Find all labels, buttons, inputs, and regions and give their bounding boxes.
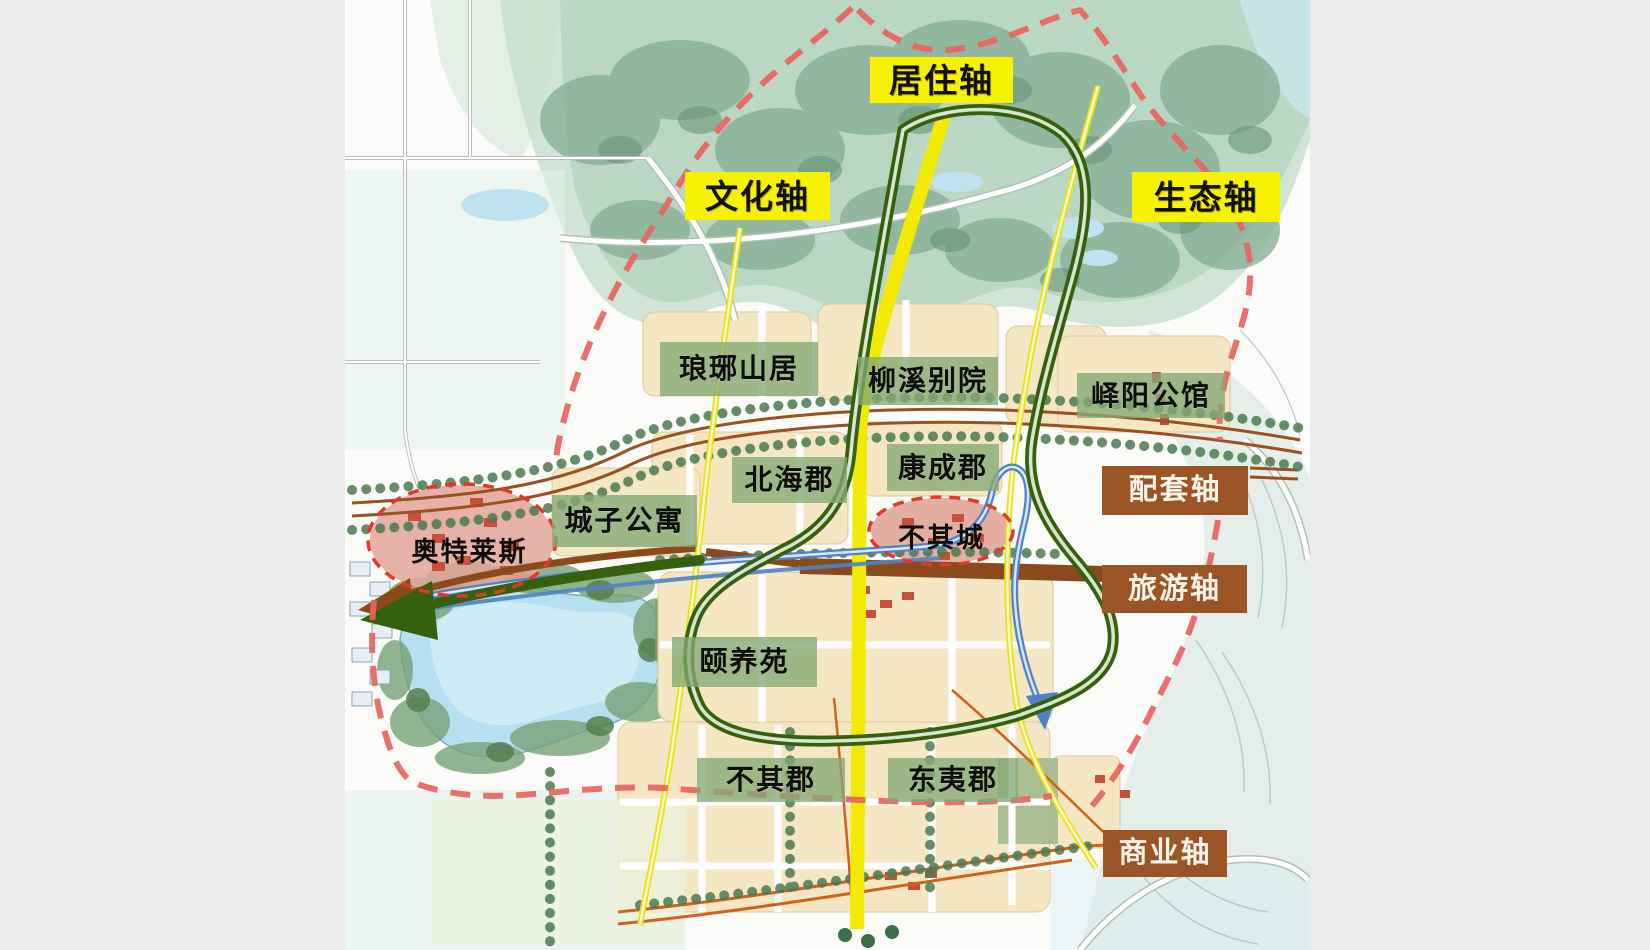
map-labels-layer: 居住轴文化轴生态轴配套轴旅游轴商业轴琅琊山居柳溪别院峄阳公馆北海郡康成郡城子公寓…: [345, 0, 1310, 950]
district-label-kangcheng-jun: 康成郡: [887, 444, 999, 491]
axis-label-tourism-axis: 旅游轴: [1102, 565, 1247, 613]
planning-map-canvas: 居住轴文化轴生态轴配套轴旅游轴商业轴琅琊山居柳溪别院峄阳公馆北海郡康成郡城子公寓…: [0, 0, 1650, 950]
axis-label-residential-axis: 居住轴: [870, 57, 1013, 103]
district-label-dongyi-jun: 东夷郡: [888, 758, 1018, 802]
district-label-langya-shanju: 琅琊山居: [660, 342, 818, 396]
district-label-beihai-jun: 北海郡: [732, 457, 847, 503]
axis-label-supporting-axis: 配套轴: [1102, 466, 1248, 515]
district-label-yiyang-yuan: 颐养苑: [672, 637, 817, 687]
axis-label-culture-axis: 文化轴: [685, 172, 830, 220]
axis-label-ecology-axis: 生态轴: [1132, 172, 1280, 222]
landmark-label-buqi-cheng: 不其城: [894, 522, 989, 554]
district-label-chengzi-gongyu: 城子公寓: [552, 495, 697, 547]
axis-label-commercial-axis: 商业轴: [1103, 830, 1227, 877]
district-label-yiyang-gongguan: 峄阳公馆: [1077, 373, 1225, 418]
district-label-liuxi-bieyuan: 柳溪别院: [858, 357, 998, 405]
district-label-buqi-jun: 不其郡: [697, 758, 845, 802]
landmark-label-aotelaisi: 奥特莱斯: [412, 536, 527, 568]
map-image: 居住轴文化轴生态轴配套轴旅游轴商业轴琅琊山居柳溪别院峄阳公馆北海郡康成郡城子公寓…: [345, 0, 1310, 950]
